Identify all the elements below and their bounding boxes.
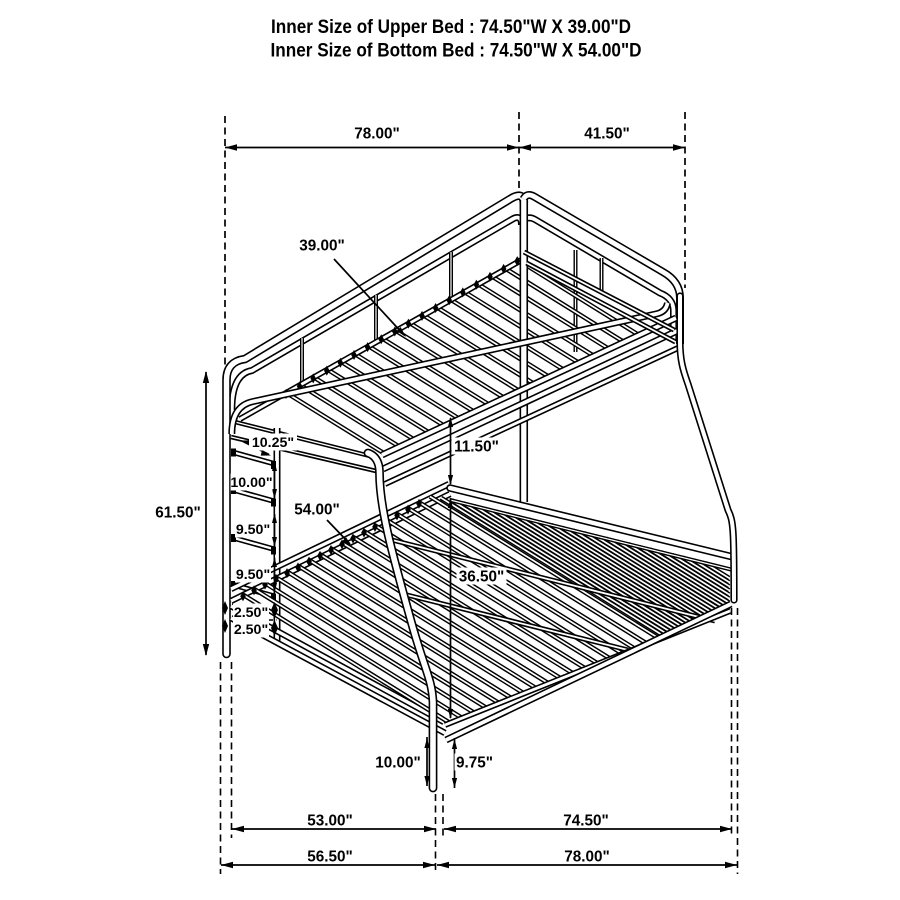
- svg-text:9.75": 9.75": [456, 755, 493, 772]
- svg-text:2.50": 2.50": [234, 605, 268, 621]
- svg-text:Inner Size of Bottom Bed : 74.: Inner Size of Bottom Bed : 74.50"W X 54.…: [271, 40, 642, 62]
- svg-text:10.00": 10.00": [230, 475, 272, 491]
- svg-text:36.50": 36.50": [459, 569, 505, 586]
- svg-text:39.00": 39.00": [299, 238, 345, 255]
- svg-text:61.50": 61.50": [155, 505, 201, 522]
- svg-text:78.00": 78.00": [354, 126, 400, 143]
- svg-text:2.50": 2.50": [234, 622, 268, 638]
- svg-text:41.50": 41.50": [584, 126, 630, 143]
- svg-text:53.00": 53.00": [307, 813, 353, 830]
- svg-text:9.50": 9.50": [236, 522, 270, 538]
- svg-text:10.00": 10.00": [375, 755, 421, 772]
- svg-text:54.00": 54.00": [294, 502, 340, 519]
- svg-text:56.50": 56.50": [307, 849, 353, 866]
- svg-text:9.50": 9.50": [236, 567, 270, 583]
- svg-text:74.50": 74.50": [563, 813, 609, 830]
- svg-text:Inner Size of Upper Bed : 74.5: Inner Size of Upper Bed : 74.50"W X 39.0…: [271, 16, 631, 38]
- svg-text:11.50": 11.50": [454, 439, 499, 456]
- svg-text:78.00": 78.00": [564, 849, 610, 866]
- svg-text:10.25": 10.25": [252, 435, 294, 451]
